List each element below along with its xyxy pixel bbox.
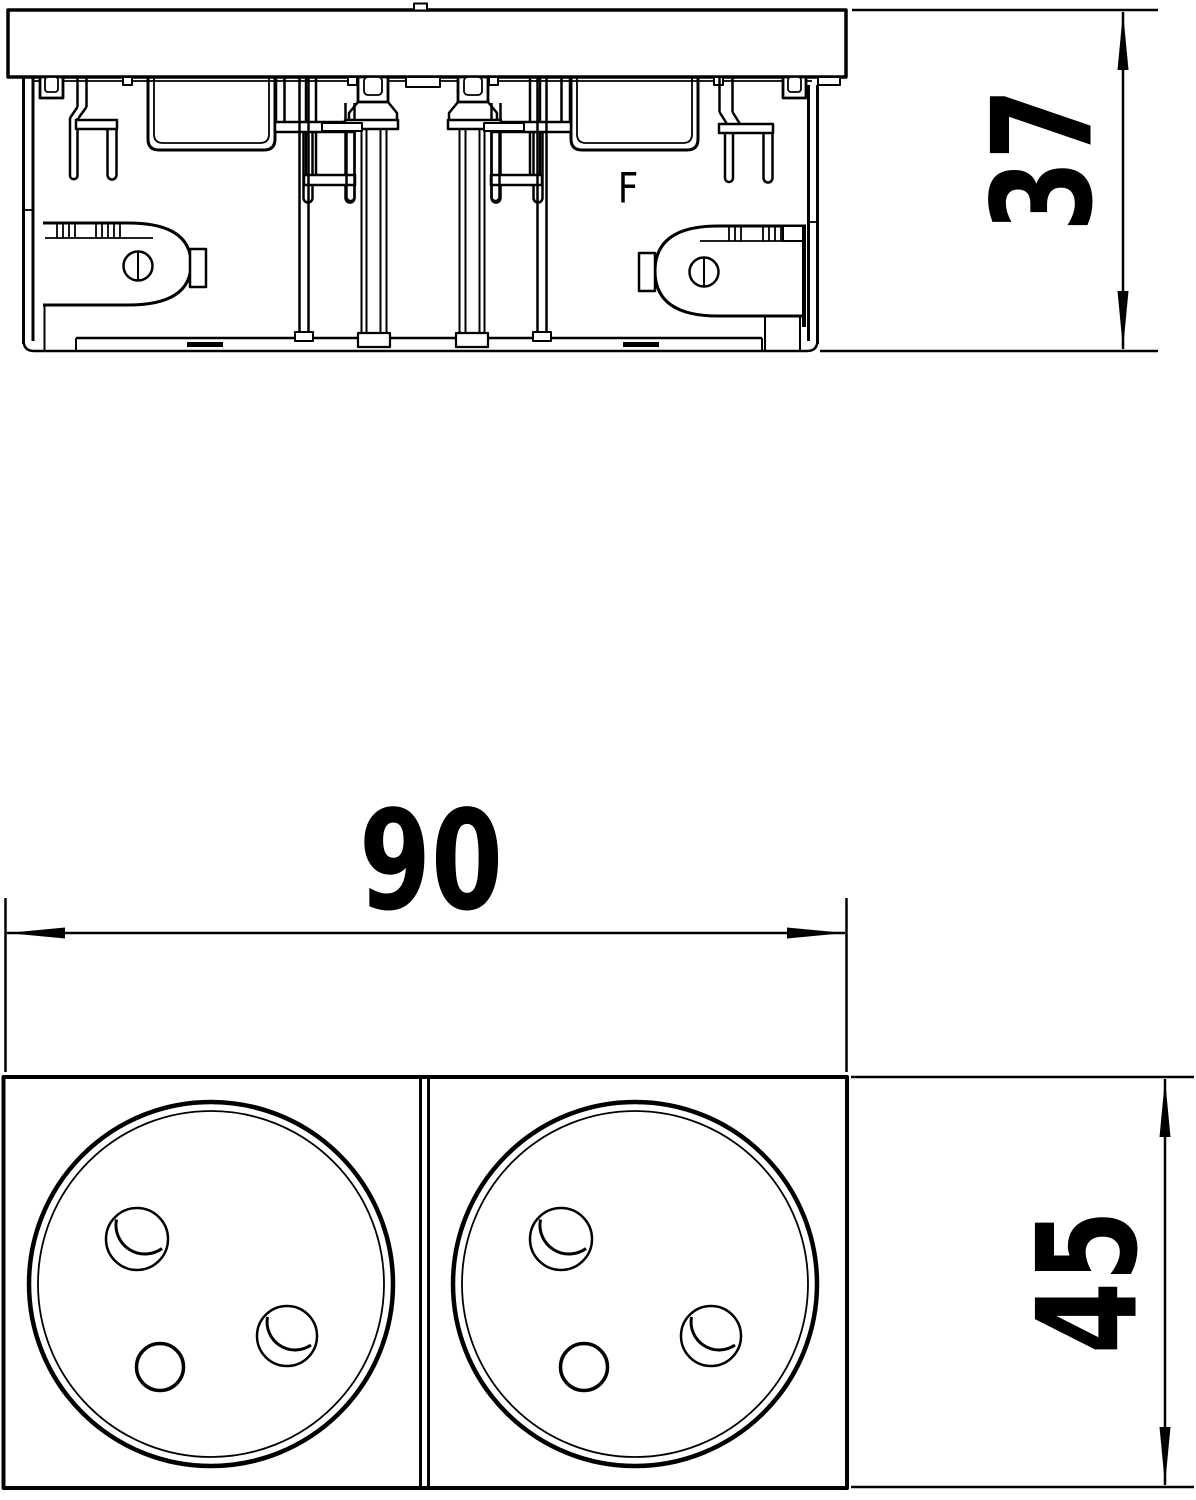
arrowhead-right-icon [787, 928, 845, 939]
partition-walls [295, 77, 551, 341]
socket-recess-right [571, 77, 698, 150]
dimension-90: 90 [6, 781, 847, 1072]
dimension-45: 45 [851, 1077, 1194, 1487]
socket-recess-left [148, 77, 275, 150]
lid-outline [8, 10, 846, 77]
socket-left [29, 1102, 393, 1466]
arrowhead-left-icon [7, 928, 65, 939]
lid-center-bar [406, 77, 440, 87]
screw-pocket-left [43, 223, 206, 305]
lid-top-tab [414, 4, 427, 11]
arrowhead-up-icon [1160, 1079, 1171, 1137]
dim-value-37: 37 [963, 88, 1124, 232]
center-plates [322, 102, 524, 347]
arrowhead-up-icon [1118, 12, 1129, 70]
dimension-37: 37 [820, 10, 1158, 351]
screw-pocket-right [639, 226, 806, 327]
terminal-left-outer [70, 77, 117, 180]
dim-value-90: 90 [359, 781, 503, 942]
socket-right [453, 1102, 817, 1466]
socket-well-right [453, 1102, 817, 1466]
marking-label: F [618, 165, 639, 213]
front-view [4, 1077, 848, 1488]
arrowhead-down-icon [1118, 291, 1129, 349]
socket-well-left [29, 1102, 393, 1466]
side-view: F [8, 4, 846, 352]
dim-value-45: 45 [1008, 1210, 1169, 1354]
terminal-right-outer [719, 77, 773, 183]
terminal-right-inner [491, 77, 571, 203]
terminal-left-inner [275, 77, 355, 203]
arrowhead-down-icon [1160, 1427, 1171, 1485]
technical-drawing-page: F 37 90 [0, 0, 1196, 1500]
socket-module-drawing: F 37 90 [0, 0, 1196, 1500]
